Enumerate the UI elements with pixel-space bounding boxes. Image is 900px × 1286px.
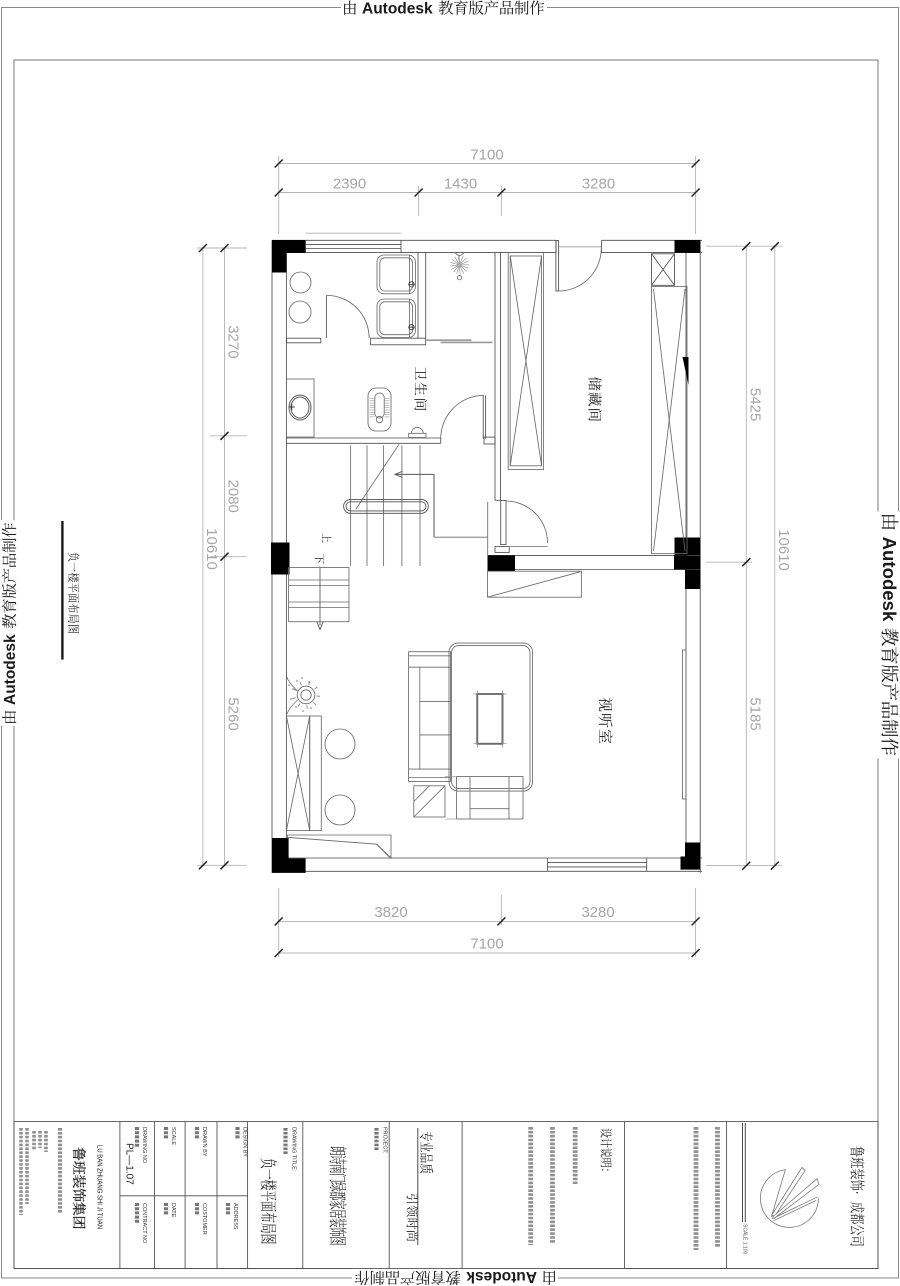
svg-text:10610: 10610 — [203, 528, 220, 570]
svg-text:1430: 1430 — [444, 176, 477, 193]
svg-text:3270: 3270 — [225, 325, 242, 358]
svg-text:2080: 2080 — [225, 480, 242, 513]
svg-text:COSTOMER: COSTOMER — [201, 1203, 207, 1235]
svg-text:3280: 3280 — [582, 176, 615, 193]
svg-text:2390: 2390 — [333, 176, 366, 193]
svg-text:DRAWING TITLE:: DRAWING TITLE: — [291, 1127, 297, 1172]
svg-text:Autodesk: Autodesk — [362, 1, 433, 18]
svg-text:Autodesk: Autodesk — [2, 634, 19, 705]
svg-text:DRAWING NO: DRAWING NO — [141, 1127, 147, 1164]
svg-text:LU BAN ZHUANG SHI JI TUAN: LU BAN ZHUANG SHI JI TUAN — [96, 1145, 103, 1229]
svg-text:10610: 10610 — [775, 529, 792, 571]
svg-text:3820: 3820 — [374, 904, 407, 921]
svg-text:5260: 5260 — [225, 697, 242, 730]
svg-text:ADDRESS: ADDRESS — [232, 1203, 238, 1230]
svg-text:Autodesk: Autodesk — [466, 1268, 537, 1285]
svg-text:CONTRACT NO: CONTRACT NO — [141, 1203, 147, 1244]
svg-text:7100: 7100 — [470, 936, 503, 953]
svg-text:PL—1.07: PL—1.07 — [124, 1143, 135, 1185]
svg-text:Autodesk: Autodesk — [879, 537, 900, 622]
svg-text:PROJECT:: PROJECT: — [382, 1127, 388, 1154]
svg-text:SCALE 1:100: SCALE 1:100 — [742, 1224, 748, 1255]
svg-text:3280: 3280 — [581, 904, 614, 921]
svg-text:5425: 5425 — [747, 388, 764, 421]
svg-text:5185: 5185 — [747, 697, 764, 730]
svg-text:DRAWN BY: DRAWN BY — [201, 1127, 207, 1157]
svg-text:DESIGN BY: DESIGN BY — [242, 1127, 248, 1157]
svg-text:7100: 7100 — [470, 147, 503, 164]
svg-text:DATE: DATE — [170, 1203, 176, 1218]
svg-text:SCALE: SCALE — [170, 1127, 176, 1145]
